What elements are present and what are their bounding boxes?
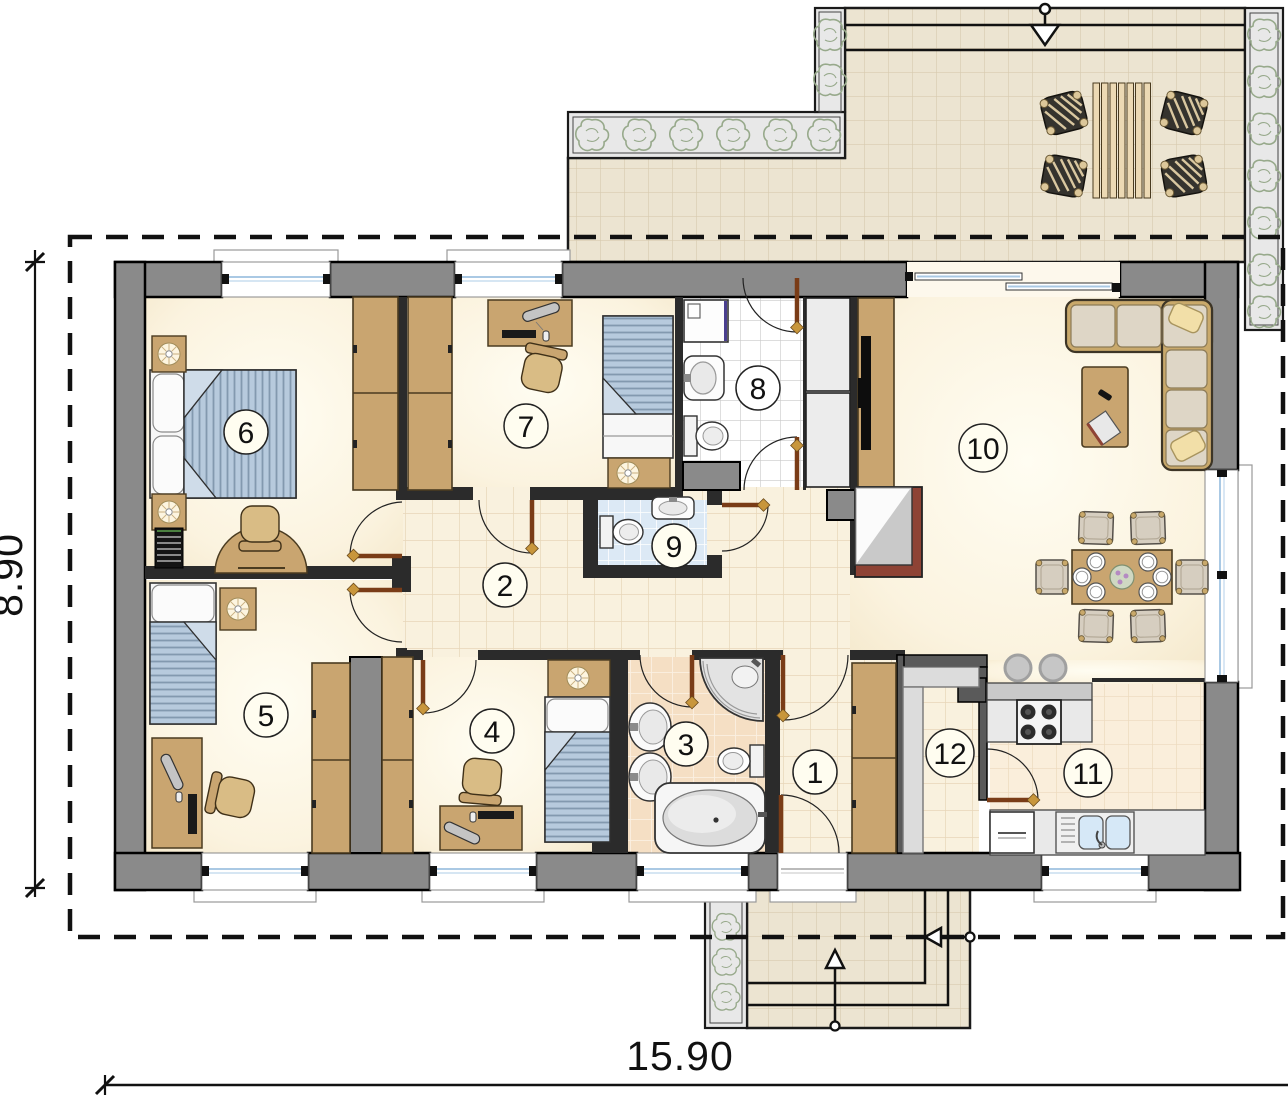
terrace-planting-strip-right: [1245, 8, 1283, 330]
svg-text:10: 10: [966, 433, 999, 466]
wardrobe-icon: [382, 657, 413, 853]
terrace-table: [1093, 83, 1151, 198]
svg-text:3: 3: [678, 729, 695, 762]
svg-text:12: 12: [933, 738, 966, 771]
terrace-planting-strip-left: [568, 8, 847, 158]
chair-icon: [239, 506, 281, 551]
room-label-9: 9: [652, 524, 696, 568]
entrance-porch: [705, 890, 975, 1031]
height-dimension-label: 8.90: [0, 533, 31, 617]
desk-icon: [488, 300, 572, 346]
toilet-icon: [718, 745, 764, 777]
room-label-11: 11: [1064, 749, 1112, 797]
room-label-12: 12: [926, 729, 974, 777]
room-label-10: 10: [959, 424, 1007, 472]
porch-planting-strip: [705, 893, 747, 1028]
svg-text:2: 2: [497, 570, 514, 603]
desk-icon: [152, 738, 202, 848]
window-room-6: [222, 262, 330, 297]
sink-icon: [684, 356, 724, 400]
lamp-icon: [158, 343, 180, 365]
dishwasher-icon: [990, 812, 1034, 853]
single-bed-icon: [150, 583, 216, 724]
built-in-closet: [806, 298, 850, 487]
room-label-4: 4: [470, 709, 514, 753]
lamp-icon: [567, 667, 589, 689]
washing-machine-icon: [684, 300, 728, 342]
svg-text:11: 11: [1072, 758, 1103, 791]
bar-stool-icon: [1040, 655, 1066, 681]
svg-text:6: 6: [238, 417, 255, 450]
wardrobe-icon: [312, 663, 350, 853]
window-kitchen: [1042, 853, 1148, 890]
wardrobe-icon: [353, 297, 398, 490]
floor-plan-drawing: 1 2 3 4 5 6 7 8 9 10 11 12: [0, 0, 1288, 1096]
room-label-7: 7: [504, 404, 548, 448]
centerpiece-icon: [1110, 565, 1134, 589]
lamp-icon: [227, 598, 249, 620]
bar-stool-icon: [1005, 655, 1031, 681]
svg-text:9: 9: [666, 531, 683, 564]
sink-icon: [652, 497, 694, 519]
room-label-3: 3: [664, 722, 708, 766]
dimension-horizontal: 15.90: [96, 1033, 1288, 1095]
svg-text:4: 4: [484, 716, 501, 749]
terrace-chair-icon: [1160, 154, 1208, 199]
stove-icon: [1017, 700, 1061, 744]
double-bed-icon: [150, 370, 296, 498]
window-room-7: [455, 262, 562, 297]
window-room-3: [637, 853, 748, 890]
svg-text:7: 7: [518, 411, 535, 444]
desk-icon: [440, 806, 522, 850]
kitchen-sink-icon: [1056, 812, 1134, 853]
svg-text:5: 5: [258, 700, 275, 733]
terrace-sliding-door: [905, 262, 1120, 297]
svg-text:8: 8: [750, 373, 767, 406]
svg-text:1: 1: [807, 757, 824, 790]
bathtub-icon: [655, 783, 767, 853]
window-room-5: [202, 853, 308, 890]
wardrobe-icon: [408, 297, 452, 490]
single-bed-icon: [603, 316, 673, 458]
room-label-1: 1: [793, 750, 837, 794]
room-label-8: 8: [736, 366, 780, 410]
lamp-icon: [158, 501, 180, 523]
single-bed-icon: [545, 697, 610, 842]
chair-icon: [459, 757, 505, 805]
dimension-vertical: 8.90: [0, 250, 45, 897]
window-room-4: [430, 853, 536, 890]
floor-plan-page: 1 2 3 4 5 6 7 8 9 10 11 12: [0, 0, 1288, 1096]
terrace-chair-icon: [1040, 154, 1088, 199]
lamp-icon: [617, 462, 639, 484]
width-dimension-label: 15.90: [626, 1033, 734, 1079]
room-label-6: 6: [224, 410, 268, 454]
tv-cabinet-icon: [858, 298, 894, 487]
window-living-room: [1205, 470, 1238, 682]
cd-rack-icon: [155, 528, 183, 568]
wardrobe-icon: [852, 663, 896, 853]
room-label-2: 2: [483, 563, 527, 607]
room-1-furniture: [852, 663, 896, 853]
coffee-table-icon: [1082, 367, 1128, 447]
room-label-5: 5: [244, 693, 288, 737]
front-door-opening: [778, 853, 847, 890]
